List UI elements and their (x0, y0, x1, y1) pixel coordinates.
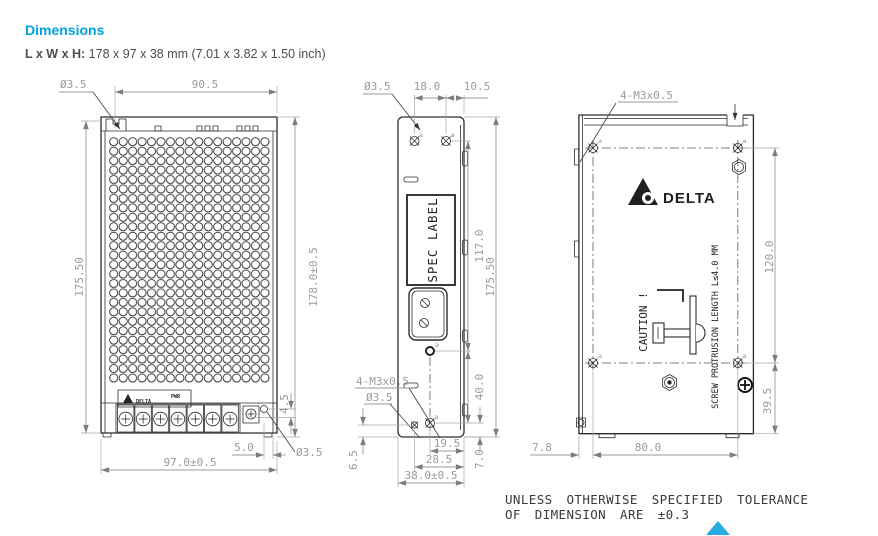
technical-drawing: DELTA PWR (0, 0, 878, 536)
keyhole (577, 418, 586, 427)
side-top-holes: a a (410, 131, 455, 146)
datum-label: a (451, 131, 455, 139)
dim-side-hole-bottom: Ø3.5 (366, 391, 393, 404)
potentiometer (243, 406, 259, 423)
screw-protrusion-diagram (653, 290, 705, 354)
side-view: a a SPEC LABEL a (347, 80, 500, 487)
side-bottom-holes: a (411, 413, 439, 429)
dim-front-width-bottom: 97.0±0.5 (164, 456, 217, 469)
front-small-hole (261, 406, 268, 413)
datum-label: a (435, 341, 439, 349)
dim-back-thread-label: 4-M3x0.5 (620, 89, 673, 102)
hex-nut-top (733, 160, 746, 175)
dim-side-offset-top: 10.5 (464, 80, 491, 93)
dim-side-thread-label: 4-M3x0.5 (356, 375, 409, 388)
front-view: DELTA PWR (59, 78, 323, 474)
datum-label: a (598, 137, 602, 145)
dim-side-width-total: 38.0±0.5 (405, 469, 458, 482)
dim-back-spacing-80: 80.0 (635, 441, 662, 454)
top-edge-tabs (155, 126, 258, 131)
caution-label: CAUTION ! (637, 292, 650, 352)
side-tab (575, 241, 579, 257)
side-slot (404, 177, 418, 182)
dim-front-height-right: 178.0±0.5 (307, 247, 320, 307)
datum-label: a (419, 131, 423, 139)
ground-screw (738, 378, 752, 392)
dim-front-offset-5-0: 5.0 (234, 441, 254, 454)
datum-label: a (598, 352, 602, 360)
delta-logo-small-icon (123, 394, 133, 403)
side-clips (463, 151, 468, 416)
ventilation-holes (109, 137, 270, 383)
datum-label: a (743, 352, 747, 360)
spec-label-text: SPEC LABEL (425, 197, 440, 282)
dim-side-spacing-40: 40.0 (473, 374, 486, 401)
delta-logo-icon: DELTA (628, 178, 716, 207)
datum-label: a (435, 413, 439, 421)
tolerance-note-line2: OF DIMENSION ARE ±0.3 (505, 507, 808, 522)
front-label-strip: DELTA PWR (118, 390, 191, 407)
spec-label-box: SPEC LABEL (407, 195, 455, 285)
dim-front-offset-4-5: 4.5 (278, 394, 291, 414)
dim-side-offset-19-5: 19.5 (434, 437, 461, 450)
dim-side-offset-7-0: 7.0 (473, 449, 486, 469)
datum-label: a (743, 137, 747, 145)
dim-side-offset-28-5: 28.5 (426, 453, 453, 466)
ac-socket (409, 288, 447, 340)
tolerance-note-line1: UNLESS OTHERWISE SPECIFIED TOLERANCE (505, 492, 808, 507)
protrusion-note: SCREW PROTRUSION LENGTH L≤4.0 MM (711, 245, 721, 409)
dim-side-height-total: 175.50 (484, 257, 497, 297)
dim-side-spacing-top: 18.0 (414, 80, 441, 93)
tolerance-note: UNLESS OTHERWISE SPECIFIED TOLERANCE OF … (505, 492, 808, 522)
dim-back-offset-39-5: 39.5 (761, 388, 774, 415)
side-tab (575, 149, 579, 165)
delta-wordmark: DELTA (663, 190, 716, 207)
pwr-label: PWR (171, 394, 181, 400)
dim-side-offset-6-5: 6.5 (347, 450, 360, 470)
dim-back-spacing-120: 120.0 (763, 240, 776, 273)
hex-nut-bottom (663, 375, 677, 391)
dim-side-hole-top: Ø3.5 (364, 80, 391, 93)
mounting-notch (106, 119, 126, 131)
dim-front-hole-top: Ø3.5 (60, 78, 87, 91)
terminal-block (116, 404, 240, 433)
dim-front-width-top: 90.5 (192, 78, 219, 91)
dim-front-hole-bottom: Ø3.5 (296, 446, 323, 459)
dim-back-offset-7-8: 7.8 (532, 441, 552, 454)
side-middle-hole: a (426, 341, 439, 355)
dim-front-height-left: 175.50 (73, 257, 86, 297)
scroll-top-button[interactable] (706, 521, 730, 535)
back-view: a a a a DELTA CAUTION ! SCREW PROTRUSION… (530, 89, 779, 459)
